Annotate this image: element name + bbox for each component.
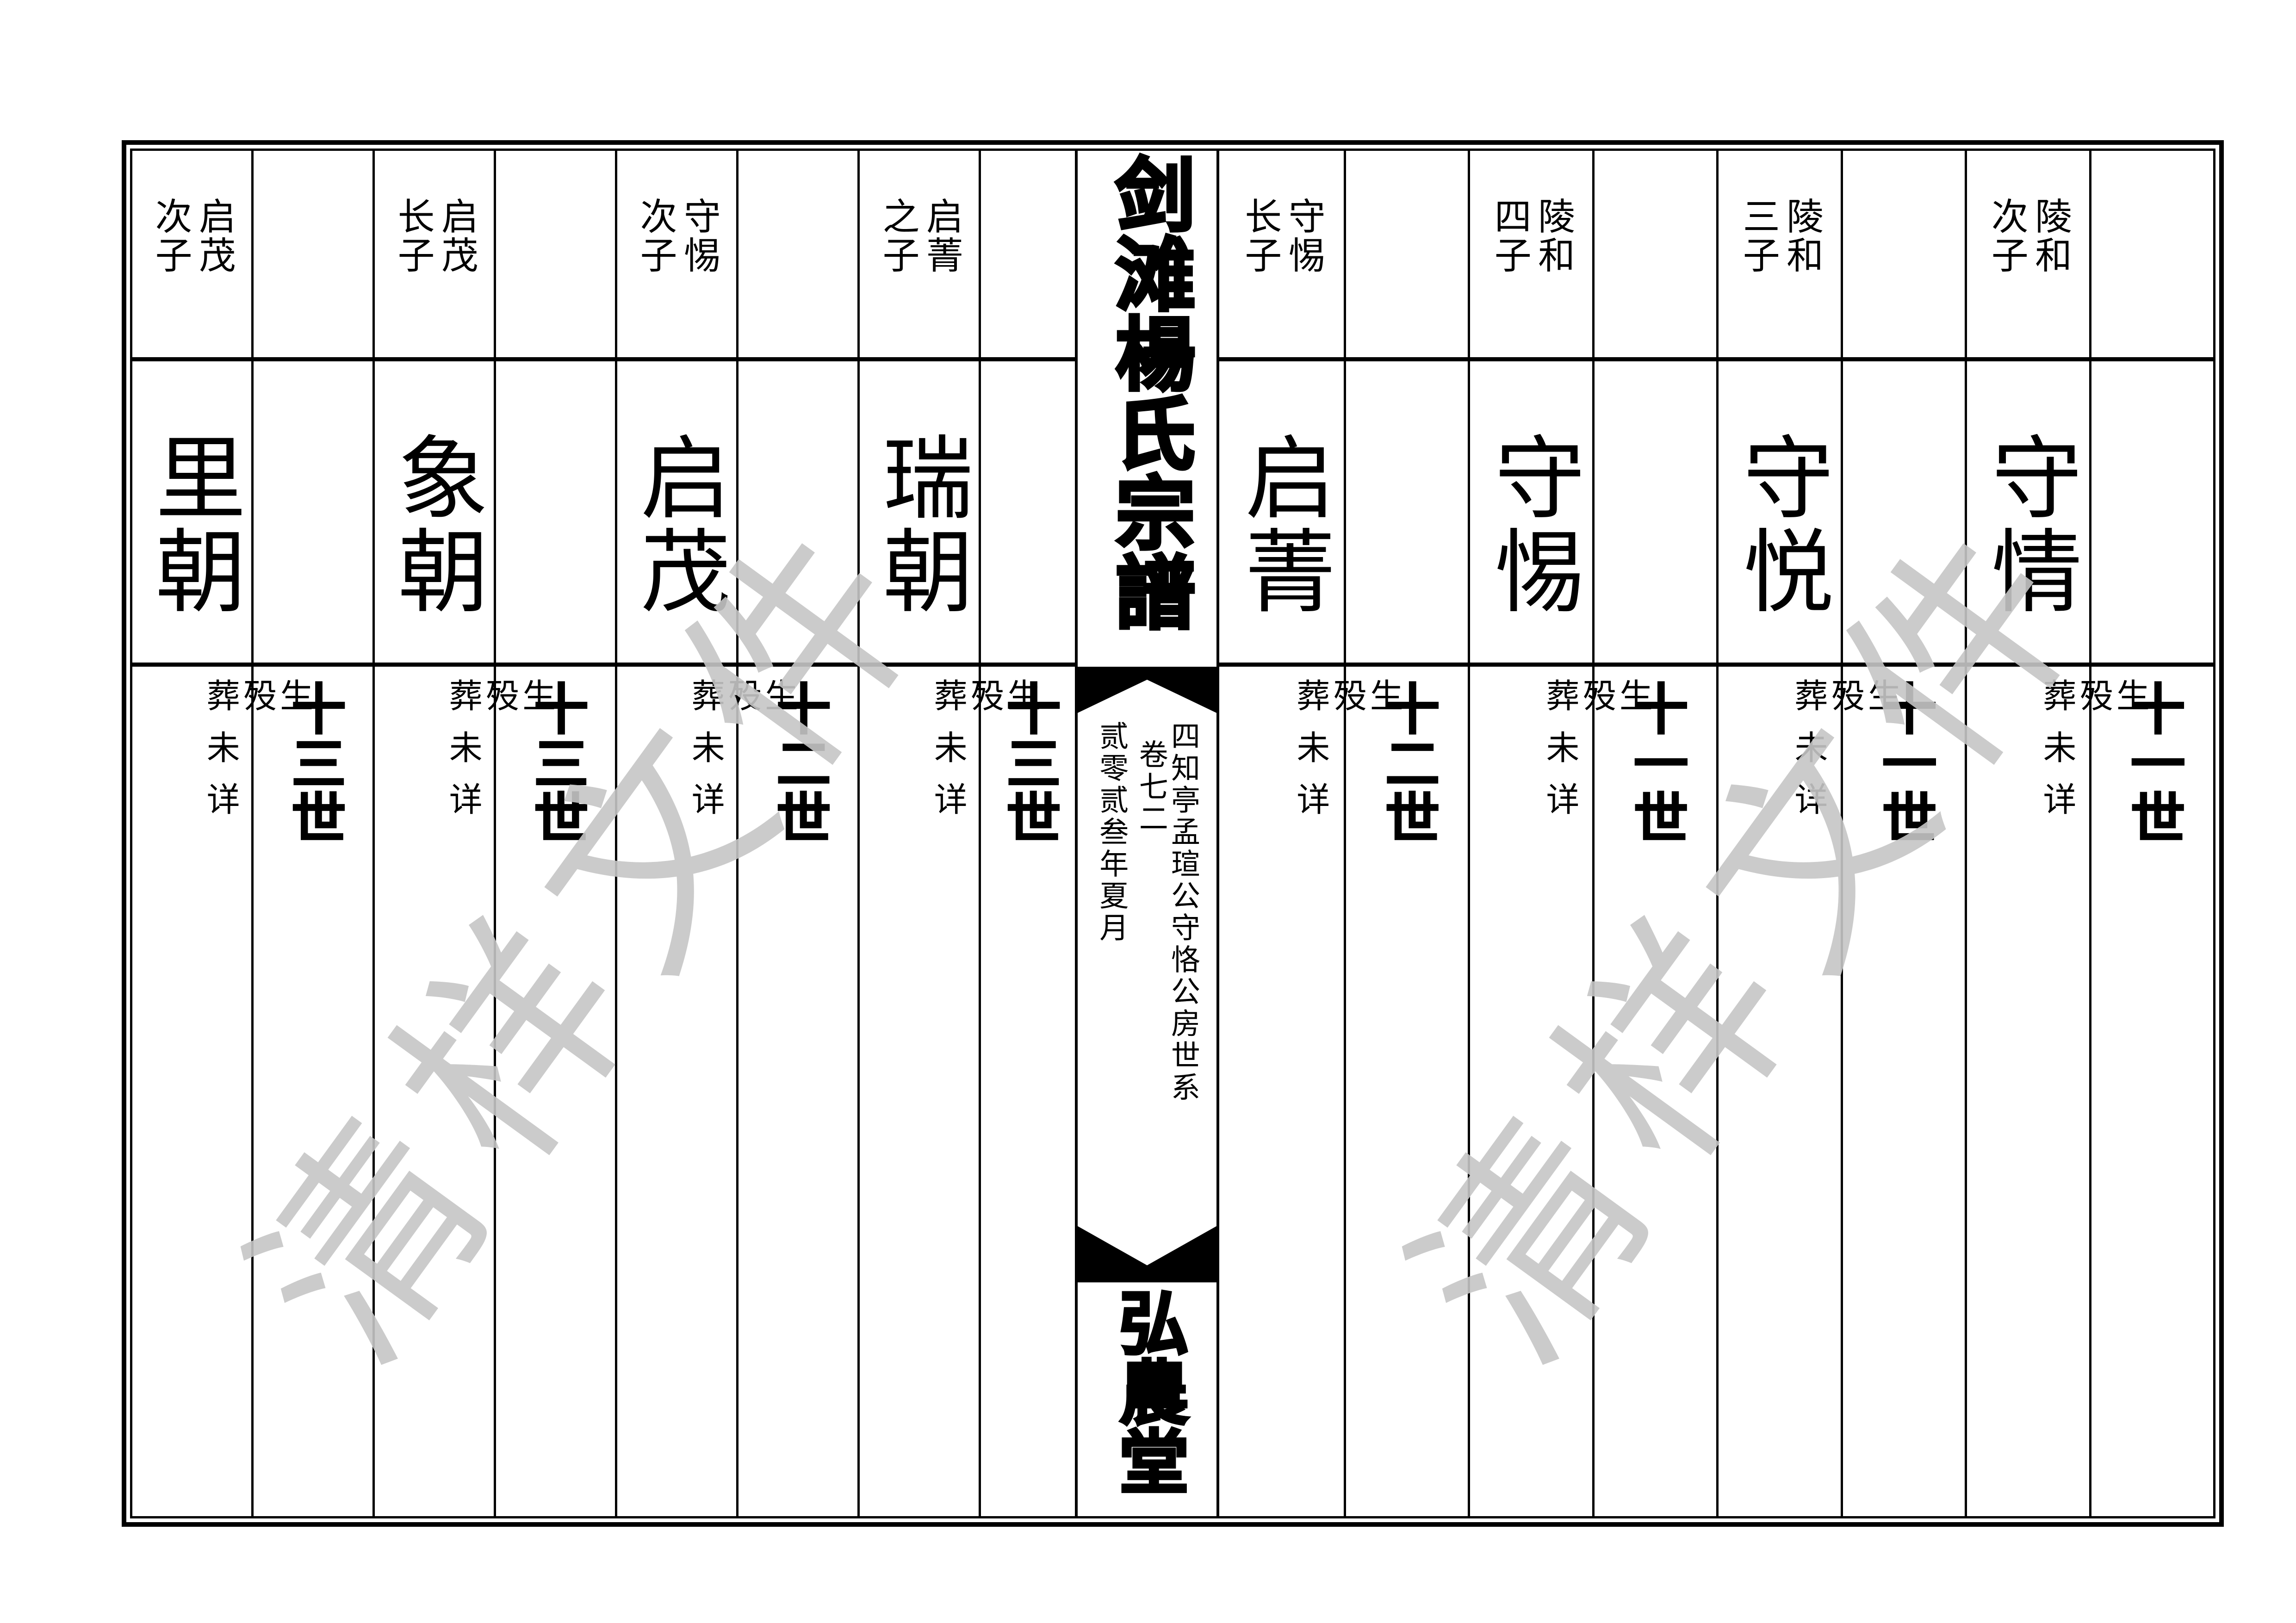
relation-parent: 守惕: [1281, 197, 1325, 357]
person-column: 陵和 次子 守情 生 殁 葬未详: [1965, 151, 2089, 1516]
relation-text: 启茂 长子: [391, 151, 478, 357]
left-half: 启茂 次子 里朝 生 殁 葬未详 十三世: [132, 151, 1075, 1516]
person-name: 启菁: [1232, 361, 1330, 663]
person-pair: 启茂 长子 象朝 生 殁 葬未详 十三世: [375, 151, 617, 1516]
relation-rank: 次子: [148, 197, 192, 357]
relation-text: 启菁 之子: [875, 151, 963, 357]
spine-date-text: 贰零贰叁年夏月: [1095, 721, 1127, 944]
empty-relation-cell: [1595, 151, 1717, 361]
right-half: 守惕 长子 启菁 生 殁 葬未详 十二世: [1219, 151, 2213, 1516]
fishtail-bottom-icon: [1078, 1225, 1216, 1282]
relation-text: 陵和 四子: [1487, 151, 1575, 357]
person-column: 启菁 之子 瑞朝 生 殁 葬未详: [860, 151, 981, 1516]
relation-rank: 四子: [1487, 197, 1531, 357]
empty-name-cell: [1346, 361, 1468, 667]
spine-column: 剑滩楊氏宗譜 四知亭孟瑄公守恪公房世系 卷七二 贰零贰叁年夏月: [1075, 151, 1219, 1516]
detail-burial: 葬未详: [1789, 678, 1826, 834]
detail-burial: 葬未详: [1291, 678, 1328, 834]
detail-burial: 葬未详: [444, 678, 480, 834]
fishtail-top-icon: [1078, 667, 1216, 715]
detail-cell: 生 殁 葬未详: [1470, 667, 1592, 1516]
generation-cell: 十三世: [981, 667, 1075, 1516]
relation-cell: 启菁 之子: [860, 151, 979, 361]
detail-cell: 生 殁 葬未详: [617, 667, 736, 1516]
empty-name-cell: [496, 361, 615, 667]
person-name: 瑞朝: [870, 361, 968, 663]
name-cell: 启菁: [1219, 361, 1344, 667]
generation-column: 十三世: [496, 151, 617, 1516]
name-cell: 守悦: [1719, 361, 1841, 667]
person-name: 象朝: [385, 361, 484, 663]
generation-cell: 十一世: [1595, 667, 1717, 1516]
name-cell: 里朝: [132, 361, 251, 667]
volume-label: 卷七二: [1135, 739, 1167, 835]
relation-rank: 次子: [1984, 197, 2028, 357]
generation-column: 十三世: [254, 151, 375, 1516]
empty-name-cell: [1595, 361, 1717, 667]
generation-cell: 十二世: [738, 667, 857, 1516]
generation-column: 十一世: [1841, 151, 1965, 1516]
name-cell: 瑞朝: [860, 361, 979, 667]
relation-cell: 启茂 次子: [132, 151, 251, 361]
relation-text: 守惕 长子: [1238, 151, 1325, 357]
detail-cell: 生 殁 葬未详: [375, 667, 494, 1516]
relation-parent: 陵和: [2028, 197, 2072, 357]
detail-cell: 生 殁 葬未详: [132, 667, 251, 1516]
name-cell: 守情: [1967, 361, 2089, 667]
person-column: 守惕 次子 启茂 生 殁 葬未详: [617, 151, 738, 1516]
person-pair: 启菁 之子 瑞朝 生 殁 葬未详 十三世: [860, 151, 1075, 1516]
empty-name-cell: [2091, 361, 2214, 667]
empty-relation-cell: [1843, 151, 1965, 361]
spine-hall-cell: 弘農堂: [1078, 1282, 1216, 1516]
empty-name-cell: [738, 361, 857, 667]
detail-cell: 生 殁 葬未详: [1219, 667, 1344, 1516]
name-cell: 启茂: [617, 361, 736, 667]
relation-cell: 陵和 次子: [1967, 151, 2089, 361]
relation-cell: 陵和 三子: [1719, 151, 1841, 361]
relation-cell: 守惕 次子: [617, 151, 736, 361]
person-name: 守惕: [1482, 361, 1580, 663]
person-name: 守情: [1979, 361, 2077, 663]
relation-parent: 启茂: [192, 197, 236, 357]
generation-cell: 十三世: [254, 667, 372, 1516]
generation-label: 十二世: [1377, 667, 1437, 844]
empty-relation-cell: [981, 151, 1075, 361]
relation-cell: 启茂 长子: [375, 151, 494, 361]
page-outer-border: 启茂 次子 里朝 生 殁 葬未详 十三世: [122, 140, 2224, 1527]
person-pair: 陵和 次子 守情 生 殁 葬未详 十一世: [1965, 151, 2213, 1516]
empty-name-cell: [981, 361, 1075, 667]
page-inner-border: 启茂 次子 里朝 生 殁 葬未详 十三世: [130, 149, 2215, 1518]
name-cell: 象朝: [375, 361, 494, 667]
person-column: 启茂 长子 象朝 生 殁 葬未详: [375, 151, 496, 1516]
detail-burial: 葬未详: [201, 678, 238, 834]
relation-rank: 之子: [875, 197, 919, 357]
person-pair: 启茂 次子 里朝 生 殁 葬未详 十三世: [132, 151, 375, 1516]
detail-burial: 葬未详: [1541, 678, 1577, 834]
person-column: 守惕 长子 启菁 生 殁 葬未详: [1219, 151, 1344, 1516]
generation-label: 十一世: [1874, 667, 1934, 844]
generation-cell: 十三世: [496, 667, 615, 1516]
genealogy-page: 启茂 次子 里朝 生 殁 葬未详 十三世: [0, 0, 2296, 1623]
person-name: 守悦: [1731, 361, 1829, 663]
person-pair: 守惕 长子 启菁 生 殁 葬未详 十二世: [1219, 151, 1468, 1516]
series-line: 四知亭孟瑄公守恪公房世系: [1167, 721, 1199, 1104]
page-content: 启茂 次子 里朝 生 殁 葬未详 十三世: [132, 151, 2213, 1516]
person-name: 里朝: [143, 361, 241, 663]
empty-relation-cell: [254, 151, 372, 361]
relation-parent: 启茂: [434, 197, 478, 357]
spine-middle-section: 四知亭孟瑄公守恪公房世系 卷七二 贰零贰叁年夏月: [1078, 715, 1216, 1225]
generation-cell: 十二世: [1346, 667, 1468, 1516]
person-name: 启茂: [628, 361, 726, 663]
generation-cell: 十一世: [2091, 667, 2214, 1516]
empty-name-cell: [1843, 361, 1965, 667]
relation-cell: 守惕 长子: [1219, 151, 1344, 361]
detail-burial: 葬未详: [2038, 678, 2074, 834]
person-column: 陵和 四子 守惕 生 殁 葬未详: [1468, 151, 1592, 1516]
relation-cell: 陵和 四子: [1470, 151, 1592, 361]
generation-label: 十一世: [2122, 667, 2182, 844]
person-column: 启茂 次子 里朝 生 殁 葬未详: [132, 151, 254, 1516]
relation-text: 守惕 次子: [633, 151, 720, 357]
empty-name-cell: [254, 361, 372, 667]
detail-burial: 葬未详: [686, 678, 723, 834]
generation-column: 十二世: [1344, 151, 1468, 1516]
person-pair: 陵和 四子 守惕 生 殁 葬未详 十一世: [1468, 151, 1716, 1516]
empty-relation-cell: [738, 151, 857, 361]
relation-parent: 启菁: [919, 197, 963, 357]
relation-parent: 陵和: [1531, 197, 1575, 357]
hall-name: 弘農堂: [1111, 1282, 1184, 1516]
generation-label: 十三世: [998, 667, 1058, 844]
person-pair: 守惕 次子 启茂 生 殁 葬未详 十二世: [617, 151, 860, 1516]
relation-rank: 次子: [633, 197, 676, 357]
generation-label: 十二世: [768, 667, 828, 844]
generation-label: 十一世: [1625, 667, 1685, 844]
detail-burial: 葬未详: [929, 678, 965, 834]
generation-label: 十三世: [526, 667, 586, 844]
relation-text: 陵和 次子: [1984, 151, 2072, 357]
book-title: 剑滩楊氏宗譜: [1105, 151, 1190, 667]
generation-cell: 十一世: [1843, 667, 1965, 1516]
empty-relation-cell: [496, 151, 615, 361]
generation-column: 十一世: [1592, 151, 1717, 1516]
generation-column: 十一世: [2089, 151, 2214, 1516]
person-column: 陵和 三子 守悦 生 殁 葬未详: [1716, 151, 1841, 1516]
empty-relation-cell: [1346, 151, 1468, 361]
relation-rank: 长子: [1238, 197, 1281, 357]
person-pair: 陵和 三子 守悦 生 殁 葬未详 十一世: [1716, 151, 1965, 1516]
detail-cell: 生 殁 葬未详: [1967, 667, 2089, 1516]
generation-column: 十三世: [981, 151, 1075, 1516]
spine-title-cell: 剑滩楊氏宗譜: [1078, 151, 1216, 667]
relation-text: 陵和 三子: [1736, 151, 1823, 357]
relation-parent: 陵和: [1780, 197, 1823, 357]
detail-cell: 生 殁 葬未详: [1719, 667, 1841, 1516]
relation-rank: 长子: [391, 197, 434, 357]
detail-cell: 生 殁 葬未详: [860, 667, 979, 1516]
empty-relation-cell: [2091, 151, 2214, 361]
relation-text: 启茂 次子: [148, 151, 236, 357]
generation-column: 十二世: [738, 151, 860, 1516]
generation-label: 十三世: [283, 667, 343, 844]
spine-series-text: 四知亭孟瑄公守恪公房世系 卷七二: [1135, 721, 1199, 1225]
relation-parent: 守惕: [677, 197, 720, 357]
relation-rank: 三子: [1736, 197, 1779, 357]
name-cell: 守惕: [1470, 361, 1592, 667]
